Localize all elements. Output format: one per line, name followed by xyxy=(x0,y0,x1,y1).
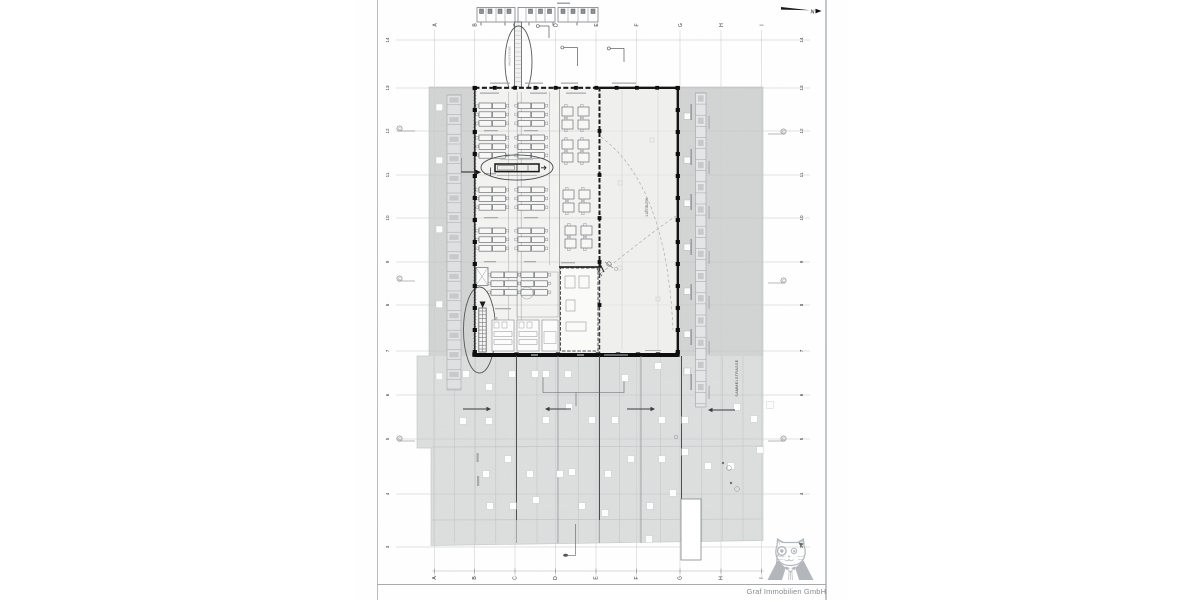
svg-text:5: 5 xyxy=(385,437,390,440)
svg-text:G: G xyxy=(678,576,684,580)
svg-text:13: 13 xyxy=(385,85,390,91)
svg-text:Lufträume: Lufträume xyxy=(644,197,649,217)
svg-text:6: 6 xyxy=(385,393,390,396)
svg-text:7: 7 xyxy=(385,349,390,352)
svg-text:H: H xyxy=(719,23,725,27)
svg-text:9: 9 xyxy=(799,260,804,263)
svg-text:F: F xyxy=(635,23,641,26)
svg-text:12: 12 xyxy=(799,128,804,134)
svg-text:4: 4 xyxy=(385,492,390,495)
svg-text:F: F xyxy=(634,576,640,579)
svg-text:14: 14 xyxy=(385,37,390,43)
svg-text:C: C xyxy=(513,576,519,580)
svg-text:G: G xyxy=(678,23,684,27)
svg-text:8: 8 xyxy=(799,303,804,306)
svg-text:I: I xyxy=(759,577,765,578)
svg-text:3: 3 xyxy=(385,545,390,548)
svg-text:Graf Immobilien GmbH: Graf Immobilien GmbH xyxy=(747,587,827,596)
svg-text:H: H xyxy=(719,576,725,580)
svg-text:11: 11 xyxy=(799,172,804,177)
svg-text:ANLIEFERUNG: ANLIEFERUNG xyxy=(508,46,512,66)
svg-text:4: 4 xyxy=(799,492,804,495)
svg-text:I: I xyxy=(760,24,766,25)
svg-text:SAMMELSTRASSE: SAMMELSTRASSE xyxy=(735,359,739,396)
svg-text:10: 10 xyxy=(799,215,804,221)
svg-text:8: 8 xyxy=(385,303,390,306)
svg-text:D: D xyxy=(554,23,560,27)
svg-text:12: 12 xyxy=(385,128,390,134)
svg-text:9: 9 xyxy=(385,260,390,263)
svg-text:6: 6 xyxy=(799,393,804,396)
svg-text:11: 11 xyxy=(385,172,390,177)
svg-text:14: 14 xyxy=(799,37,804,43)
svg-text:10: 10 xyxy=(385,215,390,221)
svg-text:N: N xyxy=(811,10,815,16)
svg-text:5: 5 xyxy=(799,437,804,440)
svg-text:13: 13 xyxy=(799,85,804,91)
svg-text:D: D xyxy=(553,576,559,580)
svg-text:7: 7 xyxy=(799,349,804,352)
